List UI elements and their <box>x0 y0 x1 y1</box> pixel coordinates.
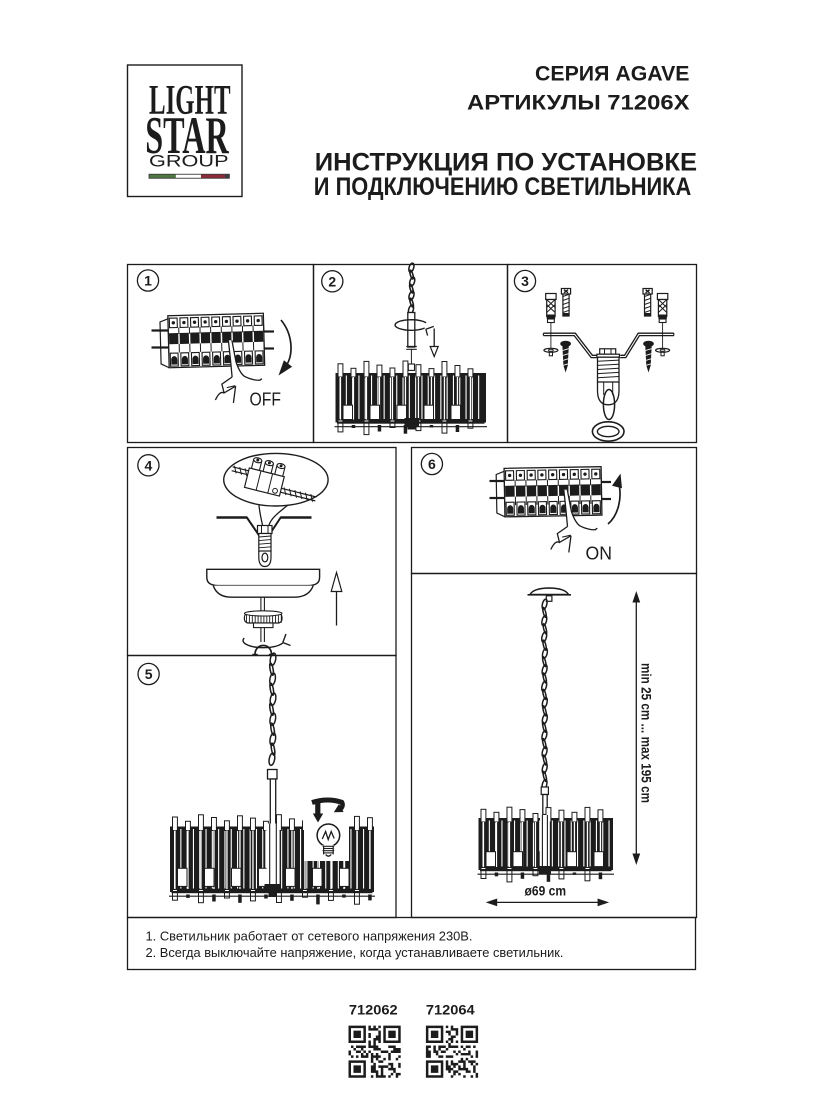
svg-text:712064: 712064 <box>426 1003 475 1018</box>
svg-text:GROUP: GROUP <box>149 153 229 171</box>
svg-text:АРТИКУЛЫ 71206X: АРТИКУЛЫ 71206X <box>467 92 690 115</box>
svg-text:2: 2 <box>328 273 336 289</box>
svg-text:5: 5 <box>145 666 153 682</box>
svg-text:4: 4 <box>145 457 153 473</box>
svg-text:1. Светильник работает от сете: 1. Светильник работает от сетевого напря… <box>146 929 473 944</box>
svg-text:СЕРИЯ AGAVE: СЕРИЯ AGAVE <box>535 63 690 86</box>
svg-text:2. Всегда выключайте напряжени: 2. Всегда выключайте напряжение, когда у… <box>146 945 564 960</box>
svg-text:ON: ON <box>586 543 613 564</box>
svg-text:6: 6 <box>428 456 436 472</box>
svg-text:И ПОДКЛЮЧЕНИЮ СВЕТИЛЬНИКА: И ПОДКЛЮЧЕНИЮ СВЕТИЛЬНИКА <box>314 173 692 201</box>
svg-text:OFF: OFF <box>250 390 282 410</box>
svg-text:min 25 cm ... max 195 cm: min 25 cm ... max 195 cm <box>639 663 654 803</box>
svg-text:3: 3 <box>521 273 529 289</box>
svg-text:1: 1 <box>144 273 152 289</box>
svg-text:ø69 cm: ø69 cm <box>525 882 567 898</box>
svg-text:712062: 712062 <box>349 1003 398 1018</box>
